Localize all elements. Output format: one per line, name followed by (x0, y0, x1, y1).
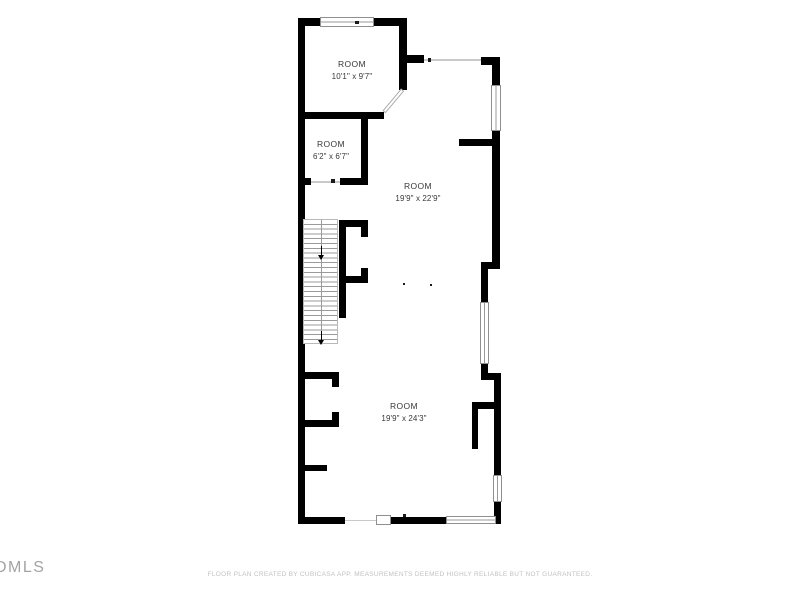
stair-divider-line (321, 220, 322, 343)
window-symbol (480, 302, 489, 364)
room-dimensions: 6'2" x 6'7" (281, 152, 381, 161)
wall-segment (407, 55, 424, 63)
wall-segment (298, 112, 384, 119)
room-name: ROOM (354, 401, 454, 411)
opening-line (345, 520, 376, 521)
room-dimensions: 10'1" x 9'7" (302, 72, 402, 81)
wall-tick (355, 21, 359, 24)
wall-segment (298, 178, 311, 185)
room-label: ROOM 19'9" x 22'9" (368, 181, 468, 203)
room-name: ROOM (302, 59, 402, 69)
room-label: ROOM 19'9" x 24'3" (354, 401, 454, 423)
window-symbol (320, 17, 374, 27)
wall-segment (361, 220, 368, 237)
room-name: ROOM (368, 181, 468, 191)
window-symbol (446, 516, 496, 524)
disclaimer-text: FLOOR PLAN CREATED BY CUBICASA APP. MEAS… (0, 571, 800, 578)
wall-segment (472, 402, 478, 449)
wall-segment (459, 139, 492, 146)
wall-segment (339, 220, 346, 318)
wall-segment (361, 268, 368, 283)
window-symbol (376, 515, 391, 525)
wall-segment (340, 178, 368, 185)
room-label: ROOM 6'2" x 6'7" (281, 139, 381, 161)
wall-segment (298, 517, 345, 524)
plan-dot (403, 283, 405, 285)
opening-line (311, 181, 340, 183)
door-tick (331, 179, 335, 183)
window-symbol (493, 475, 502, 502)
room-dimensions: 19'9" x 22'9" (368, 194, 468, 203)
staircase (303, 219, 338, 344)
wall-tick (428, 58, 431, 62)
wall-tick (403, 514, 406, 517)
wall-segment (305, 465, 327, 471)
stair-direction-arrow (321, 246, 322, 255)
room-dimensions: 19'9" x 24'3" (354, 414, 454, 423)
room-name: ROOM (281, 139, 381, 149)
wall-segment (332, 372, 339, 387)
stair-direction-arrow (321, 331, 322, 340)
wall-segment (332, 412, 339, 427)
window-symbol (491, 85, 501, 131)
wall-segment (391, 517, 446, 524)
room-label: ROOM 10'1" x 9'7" (302, 59, 402, 81)
door-leaf (382, 88, 404, 113)
plan-dot (430, 284, 432, 286)
opening-line (424, 59, 481, 61)
